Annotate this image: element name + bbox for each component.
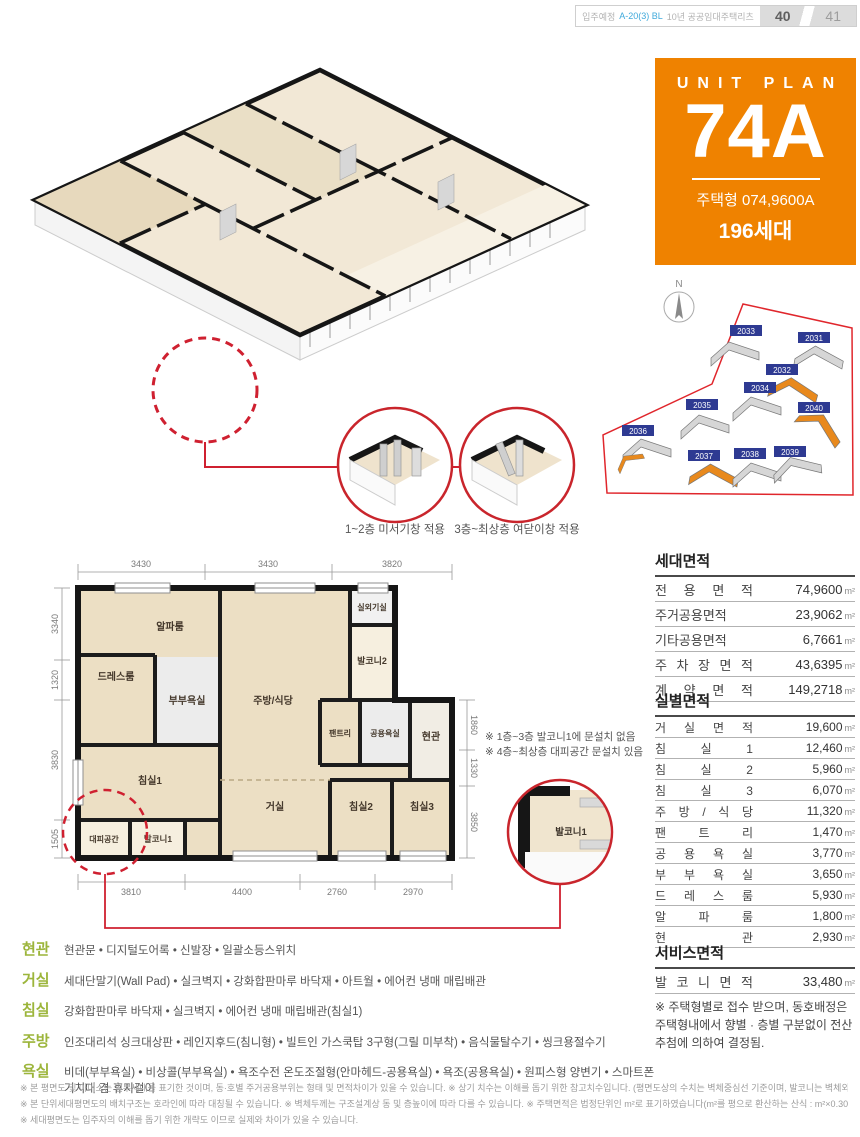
project-suffix: 10년 공공임대주택리츠 bbox=[667, 10, 754, 23]
callout-connector-1 bbox=[205, 442, 338, 467]
spec-label: 주방 bbox=[22, 1030, 64, 1051]
area-value: 43,6395m² bbox=[796, 657, 856, 672]
footnote-line: ※ 본 단위세대평면도의 배치구조는 호라인에 따라 대칭될 수 있습니다. ※… bbox=[20, 1096, 848, 1112]
area-value: 3,770m² bbox=[812, 846, 855, 860]
building-id: 2036 bbox=[629, 427, 647, 436]
brochure-page: 입주예정 A-20(3) BL 10년 공공임대주택리츠 40 41 UNIT … bbox=[0, 0, 860, 1137]
dim-left-1: 3340 bbox=[50, 614, 60, 634]
area-label: 기타공용면적 bbox=[655, 630, 753, 649]
building-footprints bbox=[614, 342, 847, 493]
table-row: 전 용 면 적74,9600m² bbox=[655, 577, 855, 602]
building-id: 2039 bbox=[781, 448, 799, 457]
area-value: 6,070m² bbox=[812, 783, 855, 797]
room-label-bed3: 침실3 bbox=[410, 800, 434, 813]
area-label: 발 코 니 면 적 bbox=[655, 972, 753, 991]
page-number-left: 40 bbox=[775, 8, 791, 24]
area-label: 드 레 스 룸 bbox=[655, 887, 753, 904]
area-value: 33,480m² bbox=[803, 974, 855, 989]
unit-code: 74A bbox=[655, 93, 856, 171]
spec-label: 거실 bbox=[22, 969, 64, 990]
building-label: 2031 bbox=[798, 332, 830, 343]
table-row: 팬 트 리1,470m² bbox=[655, 822, 855, 843]
room-label-entry: 현관 bbox=[422, 730, 441, 743]
spec-row: 침실강화합판마루 바닥재 • 실크벽지 • 에어컨 냉매 매립배관(침실1) bbox=[22, 999, 662, 1021]
callout-caption-right: 3층~최상층 여닫이창 적용 bbox=[454, 523, 579, 536]
spec-row: 거실세대단말기(Wall Pad) • 실크벽지 • 강화합판마루 바닥재 • … bbox=[22, 969, 662, 991]
dim-bottom-2: 4400 bbox=[232, 887, 252, 897]
spec-row: 현관현관문 • 디지털도어록 • 신발장 • 일괄소등스위치 bbox=[22, 938, 662, 960]
table-row: 공 용 욕 실3,770m² bbox=[655, 843, 855, 864]
room-label-living: 거실 bbox=[266, 800, 284, 813]
building-label: 2035 bbox=[686, 399, 718, 410]
table-row: 발 코 니 면 적33,480m² bbox=[655, 969, 855, 994]
building-id: 2033 bbox=[737, 327, 755, 336]
area-value: 1,470m² bbox=[812, 825, 855, 839]
area-value: 1,800m² bbox=[812, 909, 855, 923]
area-value: 74,9600m² bbox=[796, 582, 856, 597]
spec-row: 주방인조대리석 싱크대상판 • 레인지후드(침니형) • 빌트인 가스쿡탑 3구… bbox=[22, 1030, 662, 1052]
building-label: 2040 bbox=[798, 402, 830, 413]
room-label-balcony1: 발코니1 bbox=[144, 834, 172, 844]
spec-label: 욕실 bbox=[22, 1060, 64, 1081]
room-label-kitchen: 주방/식당 bbox=[253, 694, 293, 707]
room-label-outdoor-unit: 실외기실 bbox=[357, 602, 386, 612]
service-area-title: 서비스면적 bbox=[655, 942, 855, 969]
table-row: 부 부 욕 실3,650m² bbox=[655, 864, 855, 885]
page-number-right: 41 bbox=[825, 8, 841, 24]
area-label: 주 차 장 면 적 bbox=[655, 655, 753, 674]
project-block: A-20(3) BL bbox=[619, 11, 663, 21]
compass-icon: N bbox=[664, 279, 694, 322]
unit-area-table: 세대면적 전 용 면 적74,9600m² 주거공용면적23,9062m² 기타… bbox=[655, 550, 855, 702]
project-title: 입주예정 A-20(3) BL 10년 공공임대주택리츠 bbox=[576, 6, 760, 26]
table-row: 거 실 면 적19,600m² bbox=[655, 717, 855, 738]
building-id: 2040 bbox=[805, 404, 823, 413]
compass-north-label: N bbox=[675, 279, 682, 290]
room-area-title: 실별면적 bbox=[655, 690, 855, 717]
room-label-common-bath: 공용욕실 bbox=[370, 728, 399, 738]
area-label: 거 실 면 적 bbox=[655, 719, 753, 736]
spec-text: 현관문 • 디지털도어록 • 신발장 • 일괄소등스위치 bbox=[64, 944, 296, 960]
table-row: 침 실 36,070m² bbox=[655, 780, 855, 801]
building-id: 2038 bbox=[741, 450, 759, 459]
unit-area-title: 세대면적 bbox=[655, 550, 855, 577]
room-label-master-bath: 부부욕실 bbox=[169, 694, 206, 707]
table-row: 기타공용면적6,7661m² bbox=[655, 627, 855, 652]
site-plan: N 2033 2031 2032 2034 2035 2036 bbox=[595, 275, 860, 520]
unit-plan-box: UNIT PLAN 74A 주택형 074,9600A 196세대 bbox=[655, 58, 856, 265]
room-label-bed2: 침실2 bbox=[349, 800, 373, 813]
room-label-alpha: 알파룸 bbox=[156, 620, 184, 633]
floor-plan-2d: 알파룸 드레스룸 부부욕실 주방/식당 실외기실 발코니2 팬트리 공용욕실 현… bbox=[20, 550, 660, 940]
area-label: 침 실 3 bbox=[655, 782, 753, 799]
area-value: 5,960m² bbox=[812, 762, 855, 776]
footnote-line: ※ 본 평면도 및 아이소는 일부세대를 표기한 것이며, 동·호별 주거공용부… bbox=[20, 1080, 848, 1096]
dim-right-3: 3850 bbox=[469, 812, 479, 832]
households-count: 196세대 bbox=[655, 215, 856, 245]
area-label: 침 실 2 bbox=[655, 761, 753, 778]
building-label: 2038 bbox=[734, 448, 766, 459]
building-label: 2034 bbox=[744, 382, 776, 393]
area-label: 전 용 면 적 bbox=[655, 580, 753, 599]
balcony-detail-label: 발코니1 bbox=[555, 826, 587, 838]
table-row: 주거공용면적23,9062m² bbox=[655, 602, 855, 627]
area-value: 5,930m² bbox=[812, 888, 855, 902]
building-label: 2039 bbox=[774, 446, 806, 457]
dim-top-2: 3430 bbox=[258, 559, 278, 569]
window-detail-casement bbox=[460, 408, 574, 522]
dim-left-2: 1320 bbox=[50, 670, 60, 690]
dim-right-1: 1860 bbox=[469, 715, 479, 735]
area-label: 침 실 1 bbox=[655, 740, 753, 757]
balcony-detail-circle: 발코니1 bbox=[508, 780, 612, 884]
room-label-balcony2: 발코니2 bbox=[357, 655, 387, 666]
building-id: 2035 bbox=[693, 401, 711, 410]
dim-left-4: 1505 bbox=[50, 829, 60, 849]
spec-text: 인조대리석 싱크대상판 • 레인지후드(침니형) • 빌트인 가스쿡탑 3구형(… bbox=[64, 1036, 606, 1052]
table-row: 주 방 / 식 당11,320m² bbox=[655, 801, 855, 822]
page-numbers: 40 41 bbox=[760, 6, 856, 26]
header-tab: 입주예정 A-20(3) BL 10년 공공임대주택리츠 40 41 bbox=[575, 5, 857, 27]
spec-text: 세대단말기(Wall Pad) • 실크벽지 • 강화합판마루 바닥재 • 아트… bbox=[64, 975, 486, 991]
room-label-dress: 드레스룸 bbox=[98, 670, 135, 683]
area-value: 3,650m² bbox=[812, 867, 855, 881]
footnote-line: ※ 세대평면도는 입주자의 이해를 돕기 위한 개략도 이므로 실제와 차이가 … bbox=[20, 1112, 848, 1128]
dim-top-1: 3430 bbox=[131, 559, 151, 569]
dim-top-3: 3820 bbox=[382, 559, 402, 569]
dim-bottom-1: 3810 bbox=[121, 887, 141, 897]
building-label: 2032 bbox=[766, 364, 798, 375]
spec-label: 현관 bbox=[22, 938, 64, 959]
area-label: 공 용 욕 실 bbox=[655, 845, 753, 862]
building-id: 2034 bbox=[751, 384, 769, 393]
unit-type-label: 주택형 074,9600A bbox=[655, 189, 856, 210]
area-label: 팬 트 리 bbox=[655, 824, 753, 841]
spec-label: 침실 bbox=[22, 999, 64, 1020]
dim-right-2: 1330 bbox=[469, 758, 479, 778]
building-label: 2033 bbox=[730, 325, 762, 336]
area-value: 23,9062m² bbox=[796, 607, 856, 622]
area-label: 주 방 / 식 당 bbox=[655, 803, 753, 820]
allocation-note: ※ 주택형별로 접수 받으며, 동호배정은 주택형내에서 향별 · 층별 구분없… bbox=[655, 998, 857, 1052]
area-label: 알 파 룸 bbox=[655, 908, 753, 925]
plan-note-1: ※ 1층~3층 발코니1에 문설치 없음 bbox=[485, 730, 636, 743]
highlight-circle-3d bbox=[153, 338, 257, 442]
dim-bottom-4: 2970 bbox=[403, 887, 423, 897]
area-value: 12,460m² bbox=[806, 741, 855, 755]
area-value: 11,320m² bbox=[807, 804, 855, 818]
table-row: 드 레 스 룸5,930m² bbox=[655, 885, 855, 906]
room-area-table: 실별면적 거 실 면 적19,600m² 침 실 112,460m² 침 실 2… bbox=[655, 690, 855, 948]
building-id: 2031 bbox=[805, 334, 823, 343]
spec-text: 강화합판마루 바닥재 • 실크벽지 • 에어컨 냉매 매립배관(침실1) bbox=[64, 1005, 362, 1021]
unit-plan-title: UNIT PLAN bbox=[655, 58, 856, 93]
floor-plan-3d: 1~2층 미서기창 적용 3층~최상층 여닫이창 적용 bbox=[10, 40, 640, 545]
table-row: 알 파 룸1,800m² bbox=[655, 906, 855, 927]
area-value: 19,600m² bbox=[806, 720, 855, 734]
area-label: 주거공용면적 bbox=[655, 605, 753, 624]
dim-left-3: 3830 bbox=[50, 750, 60, 770]
window-detail-sliding bbox=[338, 408, 452, 522]
area-label: 부 부 욕 실 bbox=[655, 866, 753, 883]
table-row: 침 실 25,960m² bbox=[655, 759, 855, 780]
area-value: 6,7661m² bbox=[803, 632, 855, 647]
callout-caption-left: 1~2층 미서기창 적용 bbox=[345, 523, 445, 536]
room-label-refuge: 대피공간 bbox=[89, 834, 119, 844]
table-row: 침 실 112,460m² bbox=[655, 738, 855, 759]
room-label-bed1: 침실1 bbox=[138, 774, 162, 787]
building-label: 2037 bbox=[688, 450, 720, 461]
room-label-pantry: 팬트리 bbox=[329, 728, 351, 738]
building-label: 2036 bbox=[622, 425, 654, 436]
project-prefix: 입주예정 bbox=[582, 10, 615, 23]
plan-note-2: ※ 4층~최상층 대피공간 문설치 있음 bbox=[485, 746, 643, 758]
service-area-table: 서비스면적 발 코 니 면 적33,480m² bbox=[655, 942, 855, 994]
table-row: 주 차 장 면 적43,6395m² bbox=[655, 652, 855, 677]
divider bbox=[692, 178, 820, 180]
footnotes: ※ 본 평면도 및 아이소는 일부세대를 표기한 것이며, 동·호별 주거공용부… bbox=[20, 1080, 848, 1129]
building-id: 2037 bbox=[695, 452, 713, 461]
dim-bottom-3: 2760 bbox=[327, 887, 347, 897]
building-id: 2032 bbox=[773, 366, 791, 375]
